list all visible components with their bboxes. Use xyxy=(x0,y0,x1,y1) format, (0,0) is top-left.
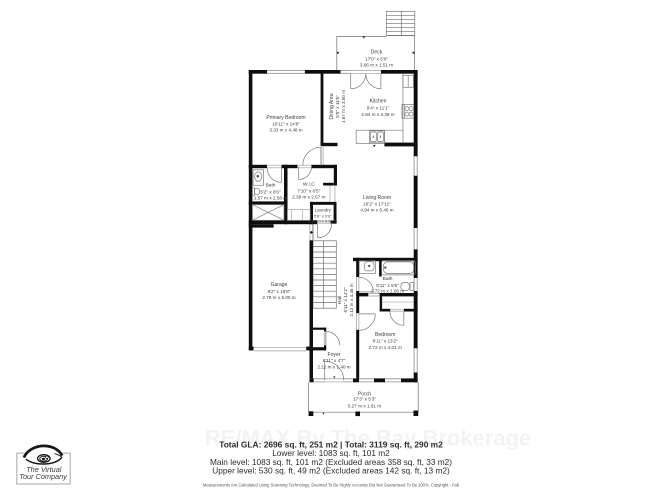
svg-text:W.I.C: W.I.C xyxy=(303,182,315,188)
svg-text:Upper level: 530 sq. ft, 49 m2: Upper level: 530 sq. ft, 49 m2 (Excluded… xyxy=(212,466,450,476)
svg-text:8'11" x 5'5": 8'11" x 5'5" xyxy=(376,283,399,288)
svg-text:5'5" x 11'6": 5'5" x 11'6" xyxy=(335,95,340,118)
svg-text:Bedroom: Bedroom xyxy=(375,332,395,338)
svg-text:3.33 m x 4.48 m: 3.33 m x 4.48 m xyxy=(269,128,302,133)
svg-text:1.68 m x 0.91 m: 1.68 m x 0.91 m xyxy=(308,219,337,224)
svg-text:5'2" x 8'6": 5'2" x 8'6" xyxy=(260,190,281,195)
svg-text:2.72 m x 4.01 m: 2.72 m x 4.01 m xyxy=(369,345,402,350)
svg-text:5'6" x 3'0": 5'6" x 3'0" xyxy=(314,213,332,218)
svg-text:Living Room: Living Room xyxy=(363,195,391,201)
svg-text:Bath: Bath xyxy=(382,276,392,282)
svg-text:2.72 m x 1.66 m: 2.72 m x 1.66 m xyxy=(371,289,404,294)
svg-text:1.67 m x 3.50 m: 1.67 m x 3.50 m xyxy=(341,90,346,123)
svg-text:Garage: Garage xyxy=(271,282,288,288)
svg-text:Foyer: Foyer xyxy=(328,352,341,358)
svg-text:Laundry: Laundry xyxy=(315,208,332,213)
svg-text:Measurements Are Calculated Us: Measurements Are Calculated Using Scanni… xyxy=(203,483,460,488)
svg-text:Bath: Bath xyxy=(265,182,275,188)
svg-text:2.12 m x 1.40 m: 2.12 m x 1.40 m xyxy=(317,364,350,369)
svg-text:16'2" x 17'11": 16'2" x 17'11" xyxy=(363,202,391,207)
svg-text:Kitchen: Kitchen xyxy=(370,99,387,105)
svg-text:17'0" x 5'0": 17'0" x 5'0" xyxy=(365,56,388,61)
svg-text:Tour Company: Tour Company xyxy=(19,472,68,481)
svg-text:Hall: Hall xyxy=(337,296,343,304)
svg-text:Dining Area: Dining Area xyxy=(329,93,335,119)
svg-text:2.12 m x 4.45 m: 2.12 m x 4.45 m xyxy=(349,283,354,316)
svg-text:2.79 m x 6.00 m: 2.79 m x 6.00 m xyxy=(262,295,295,300)
svg-text:Deck: Deck xyxy=(371,49,383,55)
svg-text:4.94 m x 5.46 m: 4.94 m x 5.46 m xyxy=(360,208,393,213)
svg-text:6'11" x 4'7": 6'11" x 4'7" xyxy=(323,358,346,363)
svg-text:7'10" x 6'5": 7'10" x 6'5" xyxy=(297,189,320,194)
svg-text:8'11" x 13'2": 8'11" x 13'2" xyxy=(373,339,398,344)
svg-text:10'11" x 14'8": 10'11" x 14'8" xyxy=(272,122,300,127)
svg-text:9'2" x 19'8": 9'2" x 19'8" xyxy=(268,289,291,294)
svg-text:3.66 m x 1.51 m: 3.66 m x 1.51 m xyxy=(360,63,393,68)
svg-text:5.27 m x 1.61 m: 5.27 m x 1.61 m xyxy=(348,403,381,408)
svg-text:2.39 m x 2.57 m: 2.39 m x 2.57 m xyxy=(292,195,325,200)
svg-text:Primary Bedroom: Primary Bedroom xyxy=(266,115,305,121)
svg-text:2.84 m x 3.39 m: 2.84 m x 3.39 m xyxy=(361,112,394,117)
svg-text:1.57 m x 2.58 m: 1.57 m x 2.58 m xyxy=(254,196,287,201)
svg-text:17'3" x 5'3": 17'3" x 5'3" xyxy=(353,397,376,402)
svg-text:9'4" x 11'1": 9'4" x 11'1" xyxy=(367,106,390,111)
svg-text:6'11" x 14'2": 6'11" x 14'2" xyxy=(343,287,348,312)
